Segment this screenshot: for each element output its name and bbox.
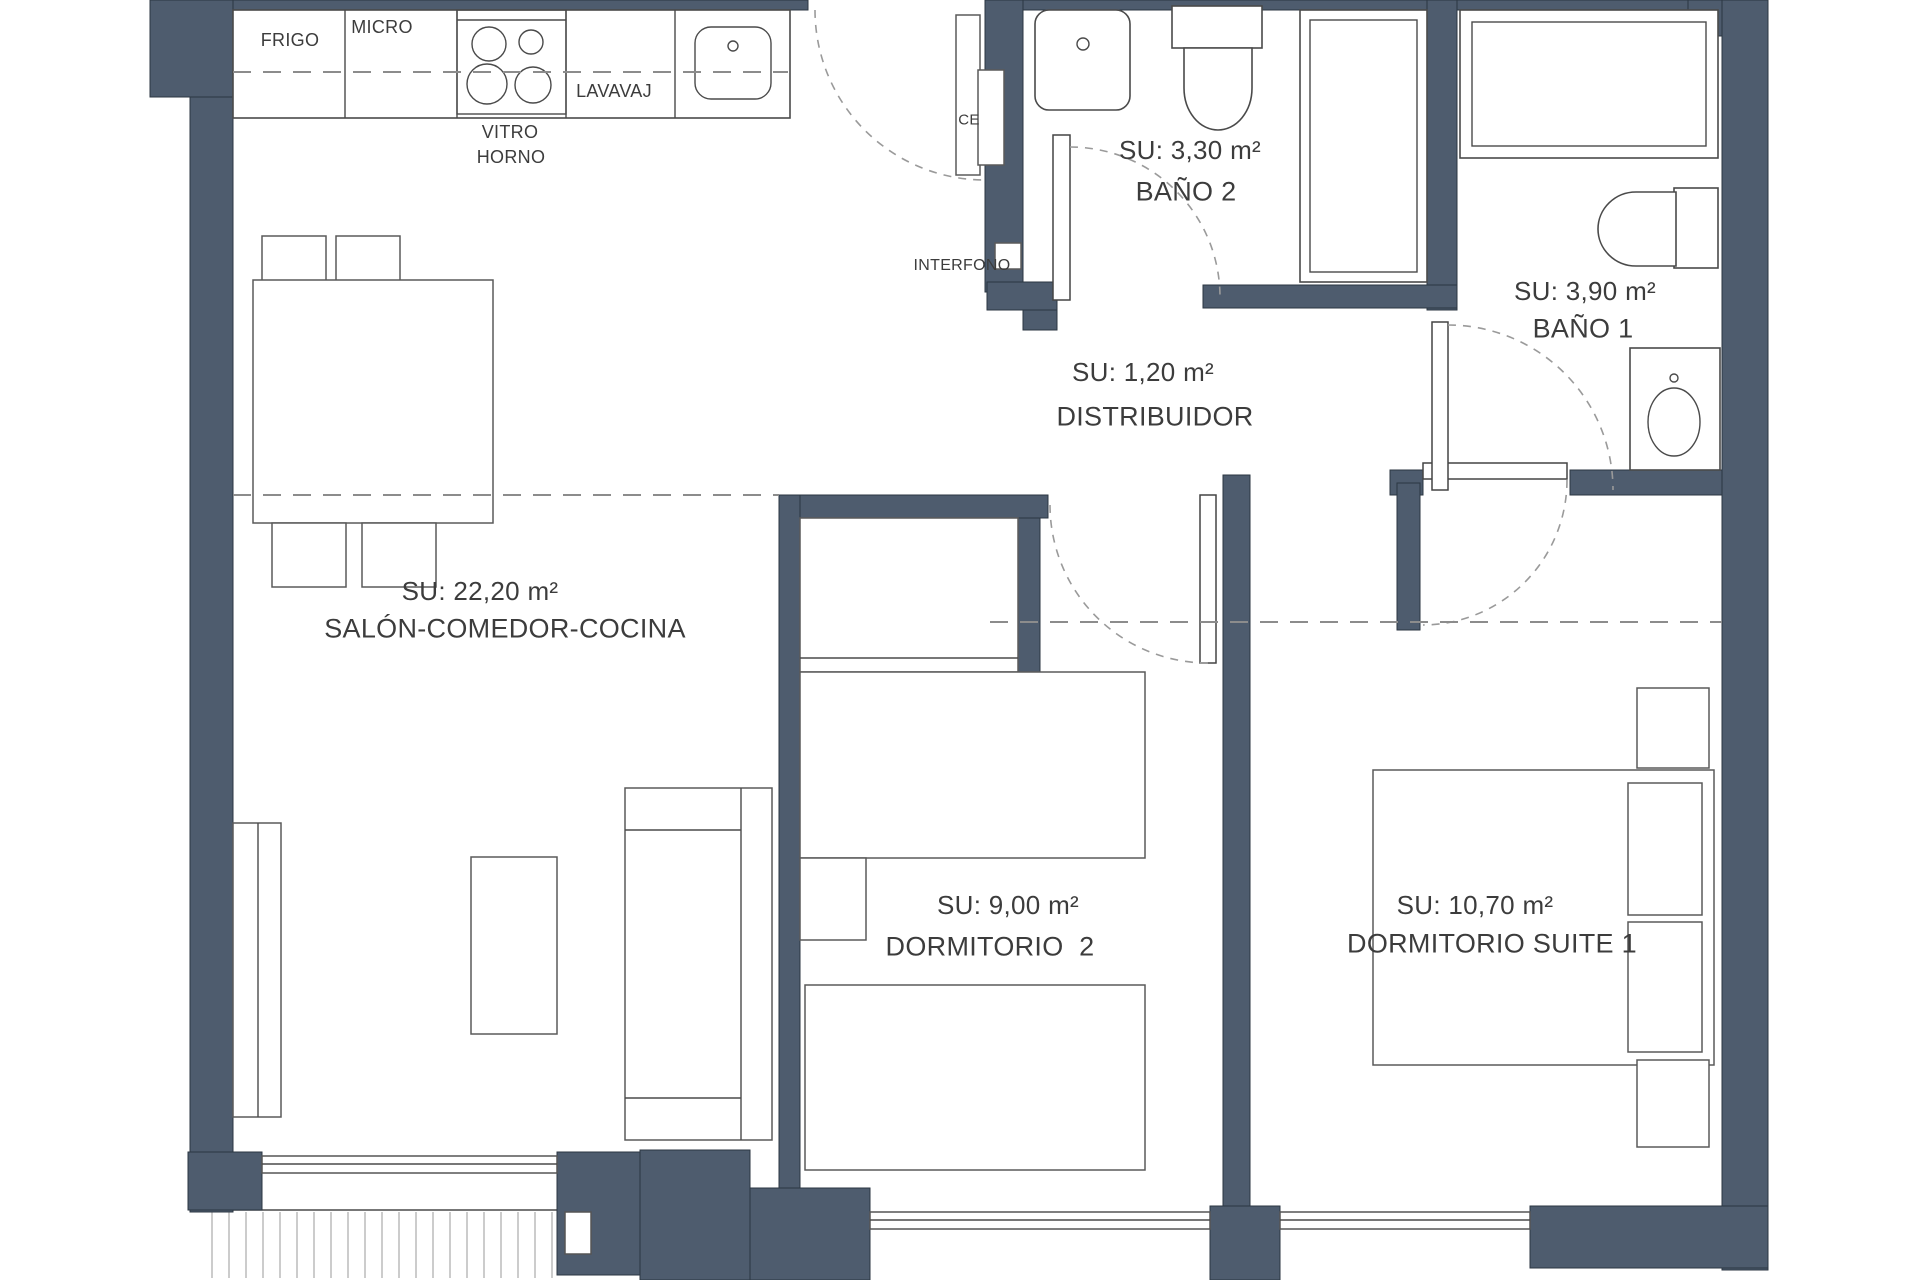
- distribuidor-area-label: SU: 1,20 m²: [1072, 359, 1214, 385]
- wall-dorm2-top: [779, 495, 1048, 518]
- entry-closet-box: [978, 70, 1004, 165]
- terrace-hatching: [212, 1212, 552, 1278]
- label-vitro: VITRO: [482, 123, 539, 141]
- label-horno: HORNO: [477, 148, 546, 166]
- bano2-toilet-bowl: [1184, 48, 1252, 130]
- wall-bano2-bano1: [1427, 0, 1457, 310]
- entry-closet: [956, 15, 980, 175]
- bano2-toilet-tank: [1172, 6, 1262, 48]
- salon-name-label: SALÓN-COMEDOR-COCINA: [324, 616, 686, 643]
- wall-wardrobe-pier: [1018, 518, 1040, 675]
- suite-door-arc: [1423, 480, 1567, 625]
- bano1-name-label: BAÑO 1: [1533, 316, 1634, 343]
- wall-between-bedrooms: [1223, 475, 1250, 1208]
- floorplan-svg: [0, 0, 1920, 1280]
- living-furniture: [233, 788, 772, 1140]
- bano1-door-leaf: [1432, 322, 1448, 490]
- wall-bedrooms-bottom-pier: [1210, 1206, 1280, 1280]
- kitchen-fixtures: [233, 10, 790, 118]
- label-interfono: INTERFONO: [914, 258, 1011, 274]
- dorm2-name-label: DORMITORIO 2: [886, 934, 1095, 961]
- wall-left: [190, 0, 233, 1212]
- dorm2-area-label: SU: 9,00 m²: [937, 892, 1079, 918]
- wall-bottomright-corner: [1530, 1206, 1768, 1268]
- wall-distrib-block: [987, 282, 1057, 310]
- wall-distrib-stub: [1023, 310, 1057, 330]
- wall-bano1-bottom-right: [1570, 470, 1722, 495]
- dorm2-bed: [800, 672, 1145, 858]
- bano1-toilet-tank: [1674, 188, 1718, 268]
- label-micro: MICRO: [351, 18, 413, 36]
- bano2-door-arc: [1070, 147, 1220, 297]
- side-window-small: [565, 1212, 591, 1254]
- dorm2-chest: [805, 985, 1145, 1170]
- label-lavavaj: LAVAVAJ: [576, 82, 652, 100]
- wall-top-bano1: [1457, 0, 1722, 10]
- bano2-name-label: BAÑO 2: [1136, 179, 1237, 206]
- dining-chair: [262, 236, 326, 282]
- dining-furniture: [253, 236, 493, 587]
- wall-topleft-pier: [150, 0, 233, 97]
- dorm2-nightstand: [800, 858, 866, 940]
- bano1-area-label: SU: 3,90 m²: [1514, 278, 1656, 304]
- bano1-toilet-bowl: [1598, 192, 1676, 266]
- wall-dorm2-bottom-block: [750, 1188, 870, 1280]
- suite-name-label: DORMITORIO SUITE 1: [1347, 931, 1637, 958]
- dorm2-furniture: [800, 518, 1145, 1170]
- wall-bano2-bottom: [1203, 285, 1457, 308]
- suite-nightstand: [1637, 1060, 1709, 1147]
- tv-bench: [233, 823, 281, 1117]
- wall-dorm2-left: [779, 495, 800, 1212]
- dining-table: [253, 280, 493, 523]
- sofa: [625, 788, 772, 1140]
- bano2-sink: [1035, 10, 1130, 110]
- dining-chair: [336, 236, 400, 282]
- dorm2-door-arc: [1050, 505, 1208, 663]
- kitchen-counter: [233, 10, 790, 118]
- wall-right: [1722, 0, 1768, 1270]
- wall-suite-door-pier: [1397, 483, 1420, 630]
- dorm2-door-leaf: [1200, 495, 1216, 663]
- distribuidor-name-label: DISTRIBUIDOR: [1056, 404, 1253, 431]
- wall-bottom-block: [640, 1150, 750, 1280]
- bano1-sink-counter: [1630, 348, 1720, 470]
- bano1-shower: [1460, 10, 1718, 158]
- dorm2-wardrobe: [800, 518, 1018, 672]
- floor-plan-page: FRIGO MICRO LAVAVAJ VITRO HORNO CE INTER…: [0, 0, 1920, 1280]
- suite-pillow: [1628, 783, 1702, 915]
- suite-area-label: SU: 10,70 m²: [1397, 892, 1554, 918]
- suite-nightstand: [1637, 688, 1709, 768]
- wall-top-kitchen: [233, 0, 808, 10]
- bano2-shower: [1300, 10, 1427, 282]
- salon-area-label: SU: 22,20 m²: [402, 578, 559, 604]
- wall-salon-window-pier-left: [188, 1152, 262, 1210]
- bano1-fixtures: [1460, 10, 1720, 470]
- label-frigo: FRIGO: [261, 31, 320, 49]
- coffee-table: [471, 857, 557, 1034]
- suite-pillow: [1628, 922, 1702, 1052]
- label-ce: CE: [958, 113, 979, 128]
- bano2-door-leaf: [1053, 135, 1070, 300]
- dining-chair: [272, 523, 346, 587]
- bano2-area-label: SU: 3,30 m²: [1119, 137, 1261, 163]
